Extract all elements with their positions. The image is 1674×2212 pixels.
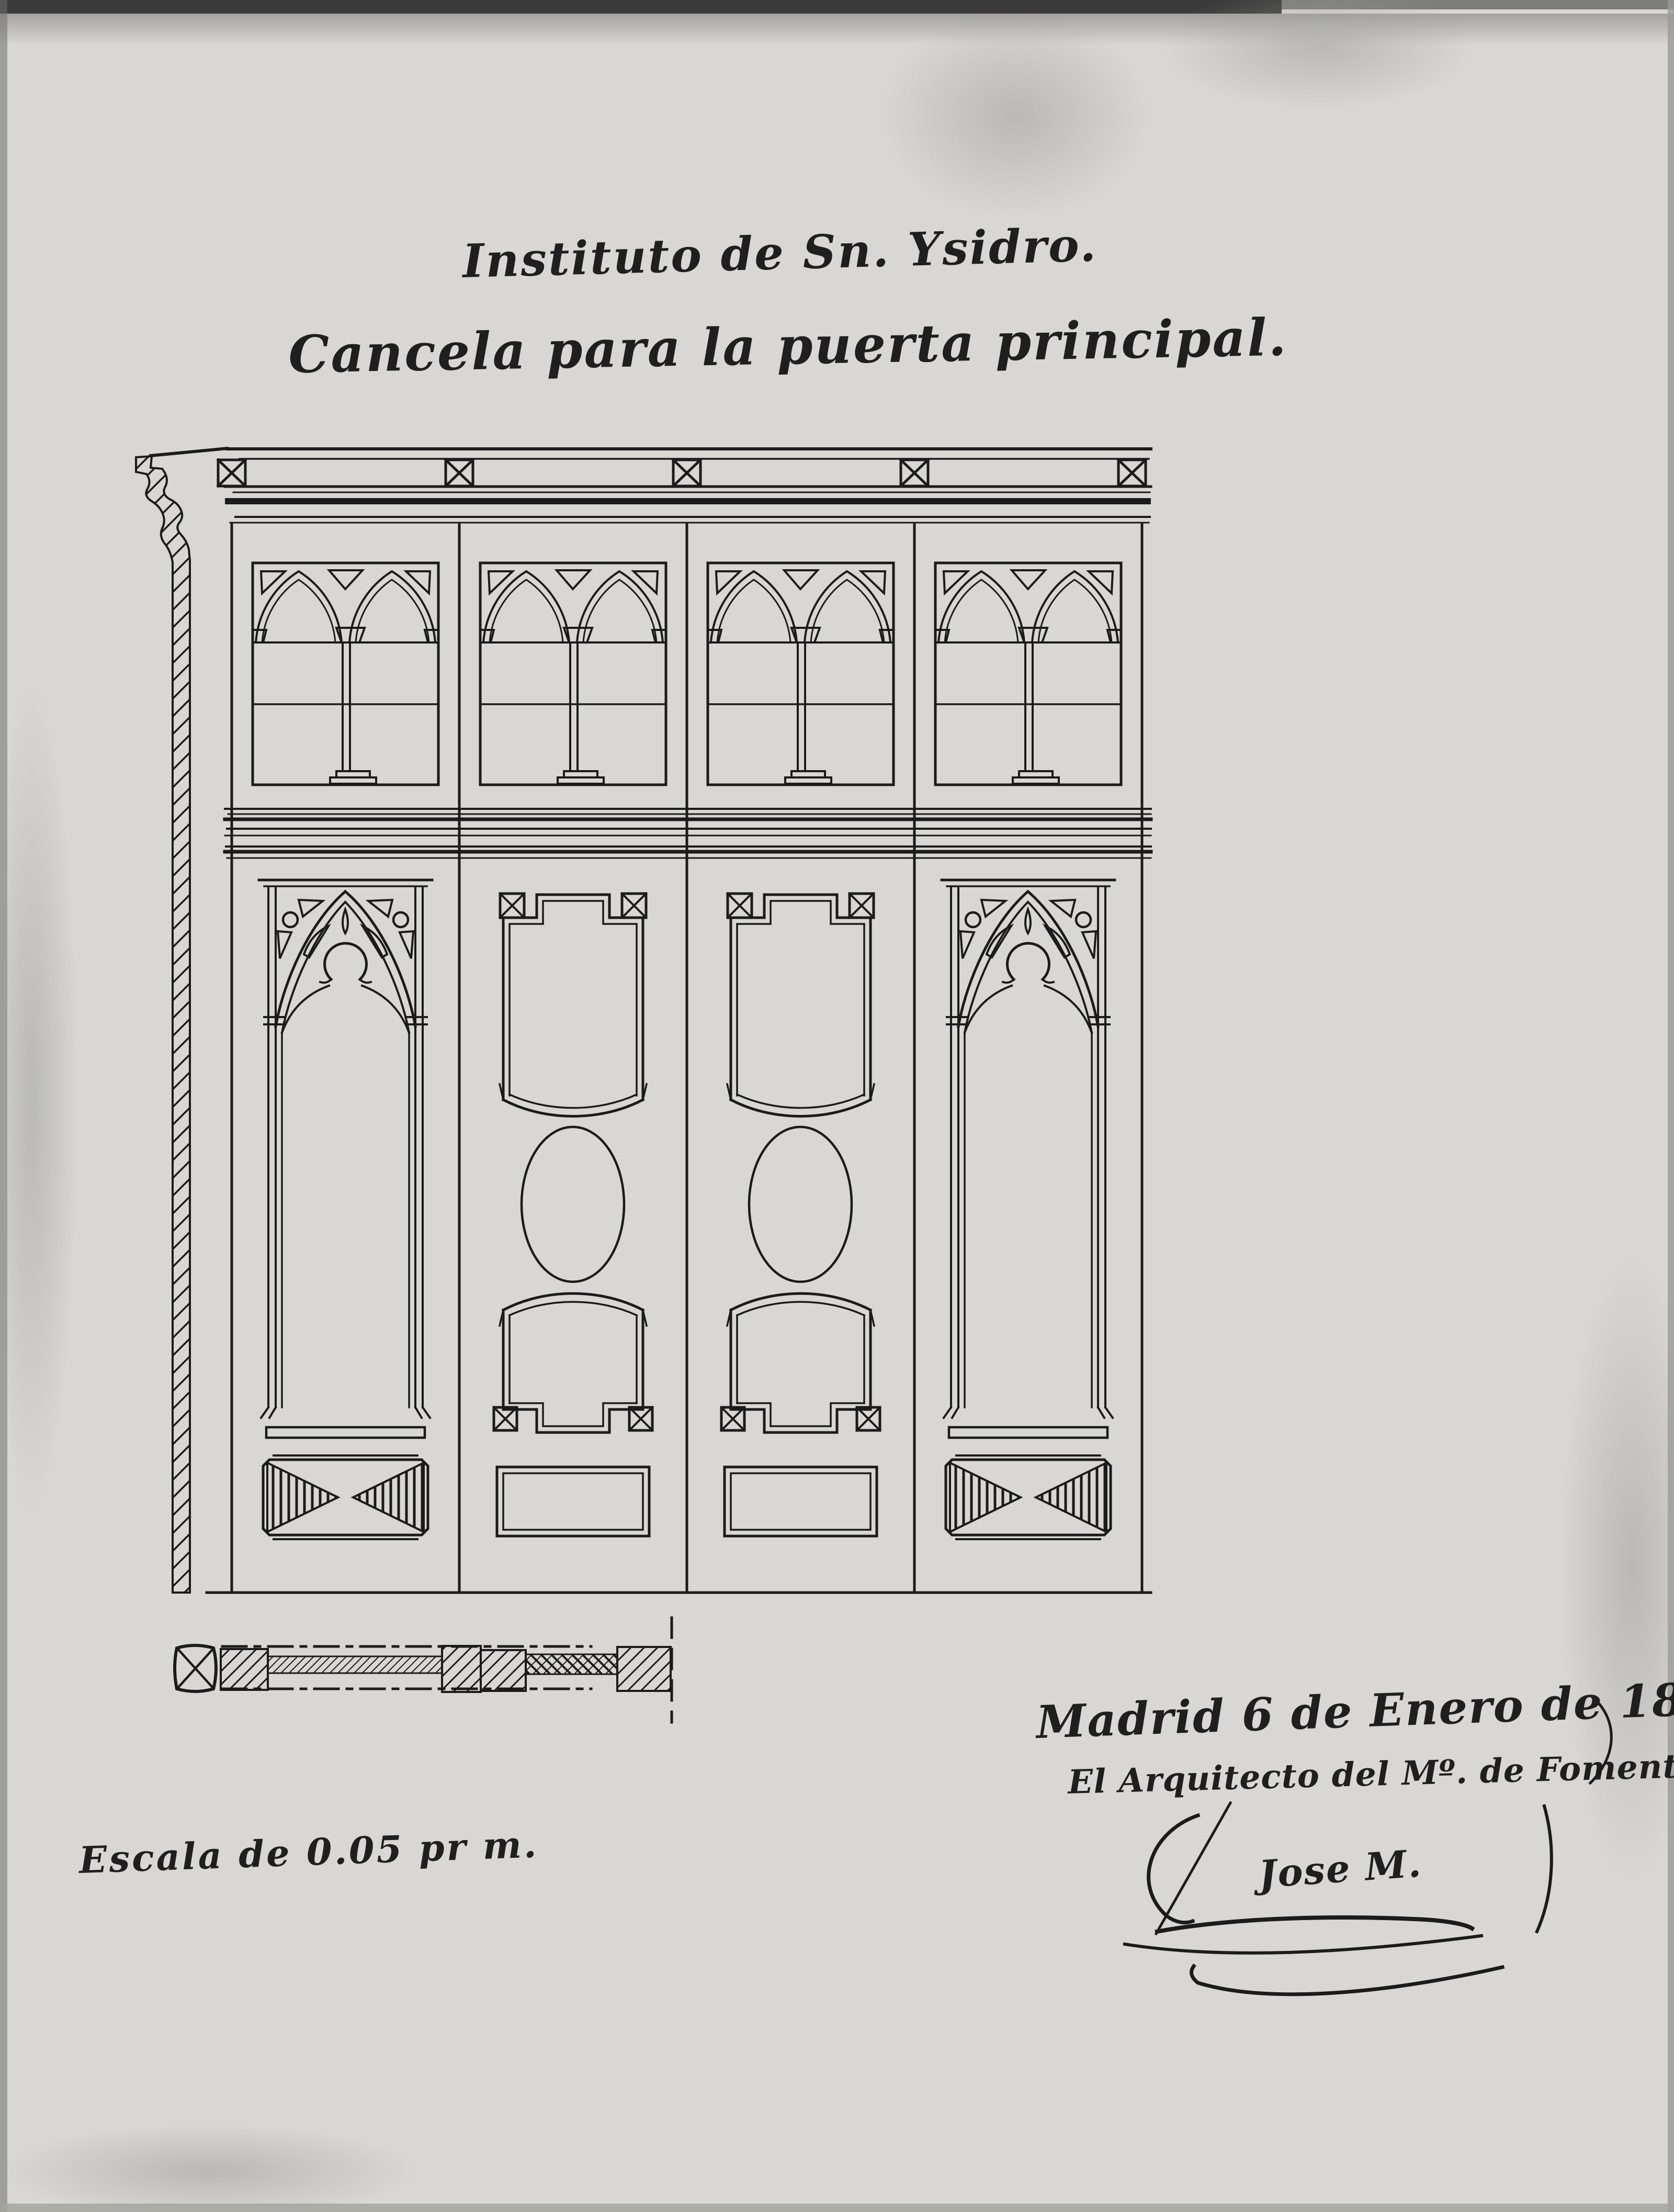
drawing-canvas: Instituto de Sn. Ysidro. Cancela para la…	[0, 0, 1674, 2212]
frame-block-section	[221, 1649, 268, 1690]
panel-section	[268, 1656, 442, 1673]
scan-smudge	[879, 10, 1151, 220]
scanned-drawing-sheet: Instituto de Sn. Ysidro. Cancela para la…	[0, 0, 1674, 2212]
